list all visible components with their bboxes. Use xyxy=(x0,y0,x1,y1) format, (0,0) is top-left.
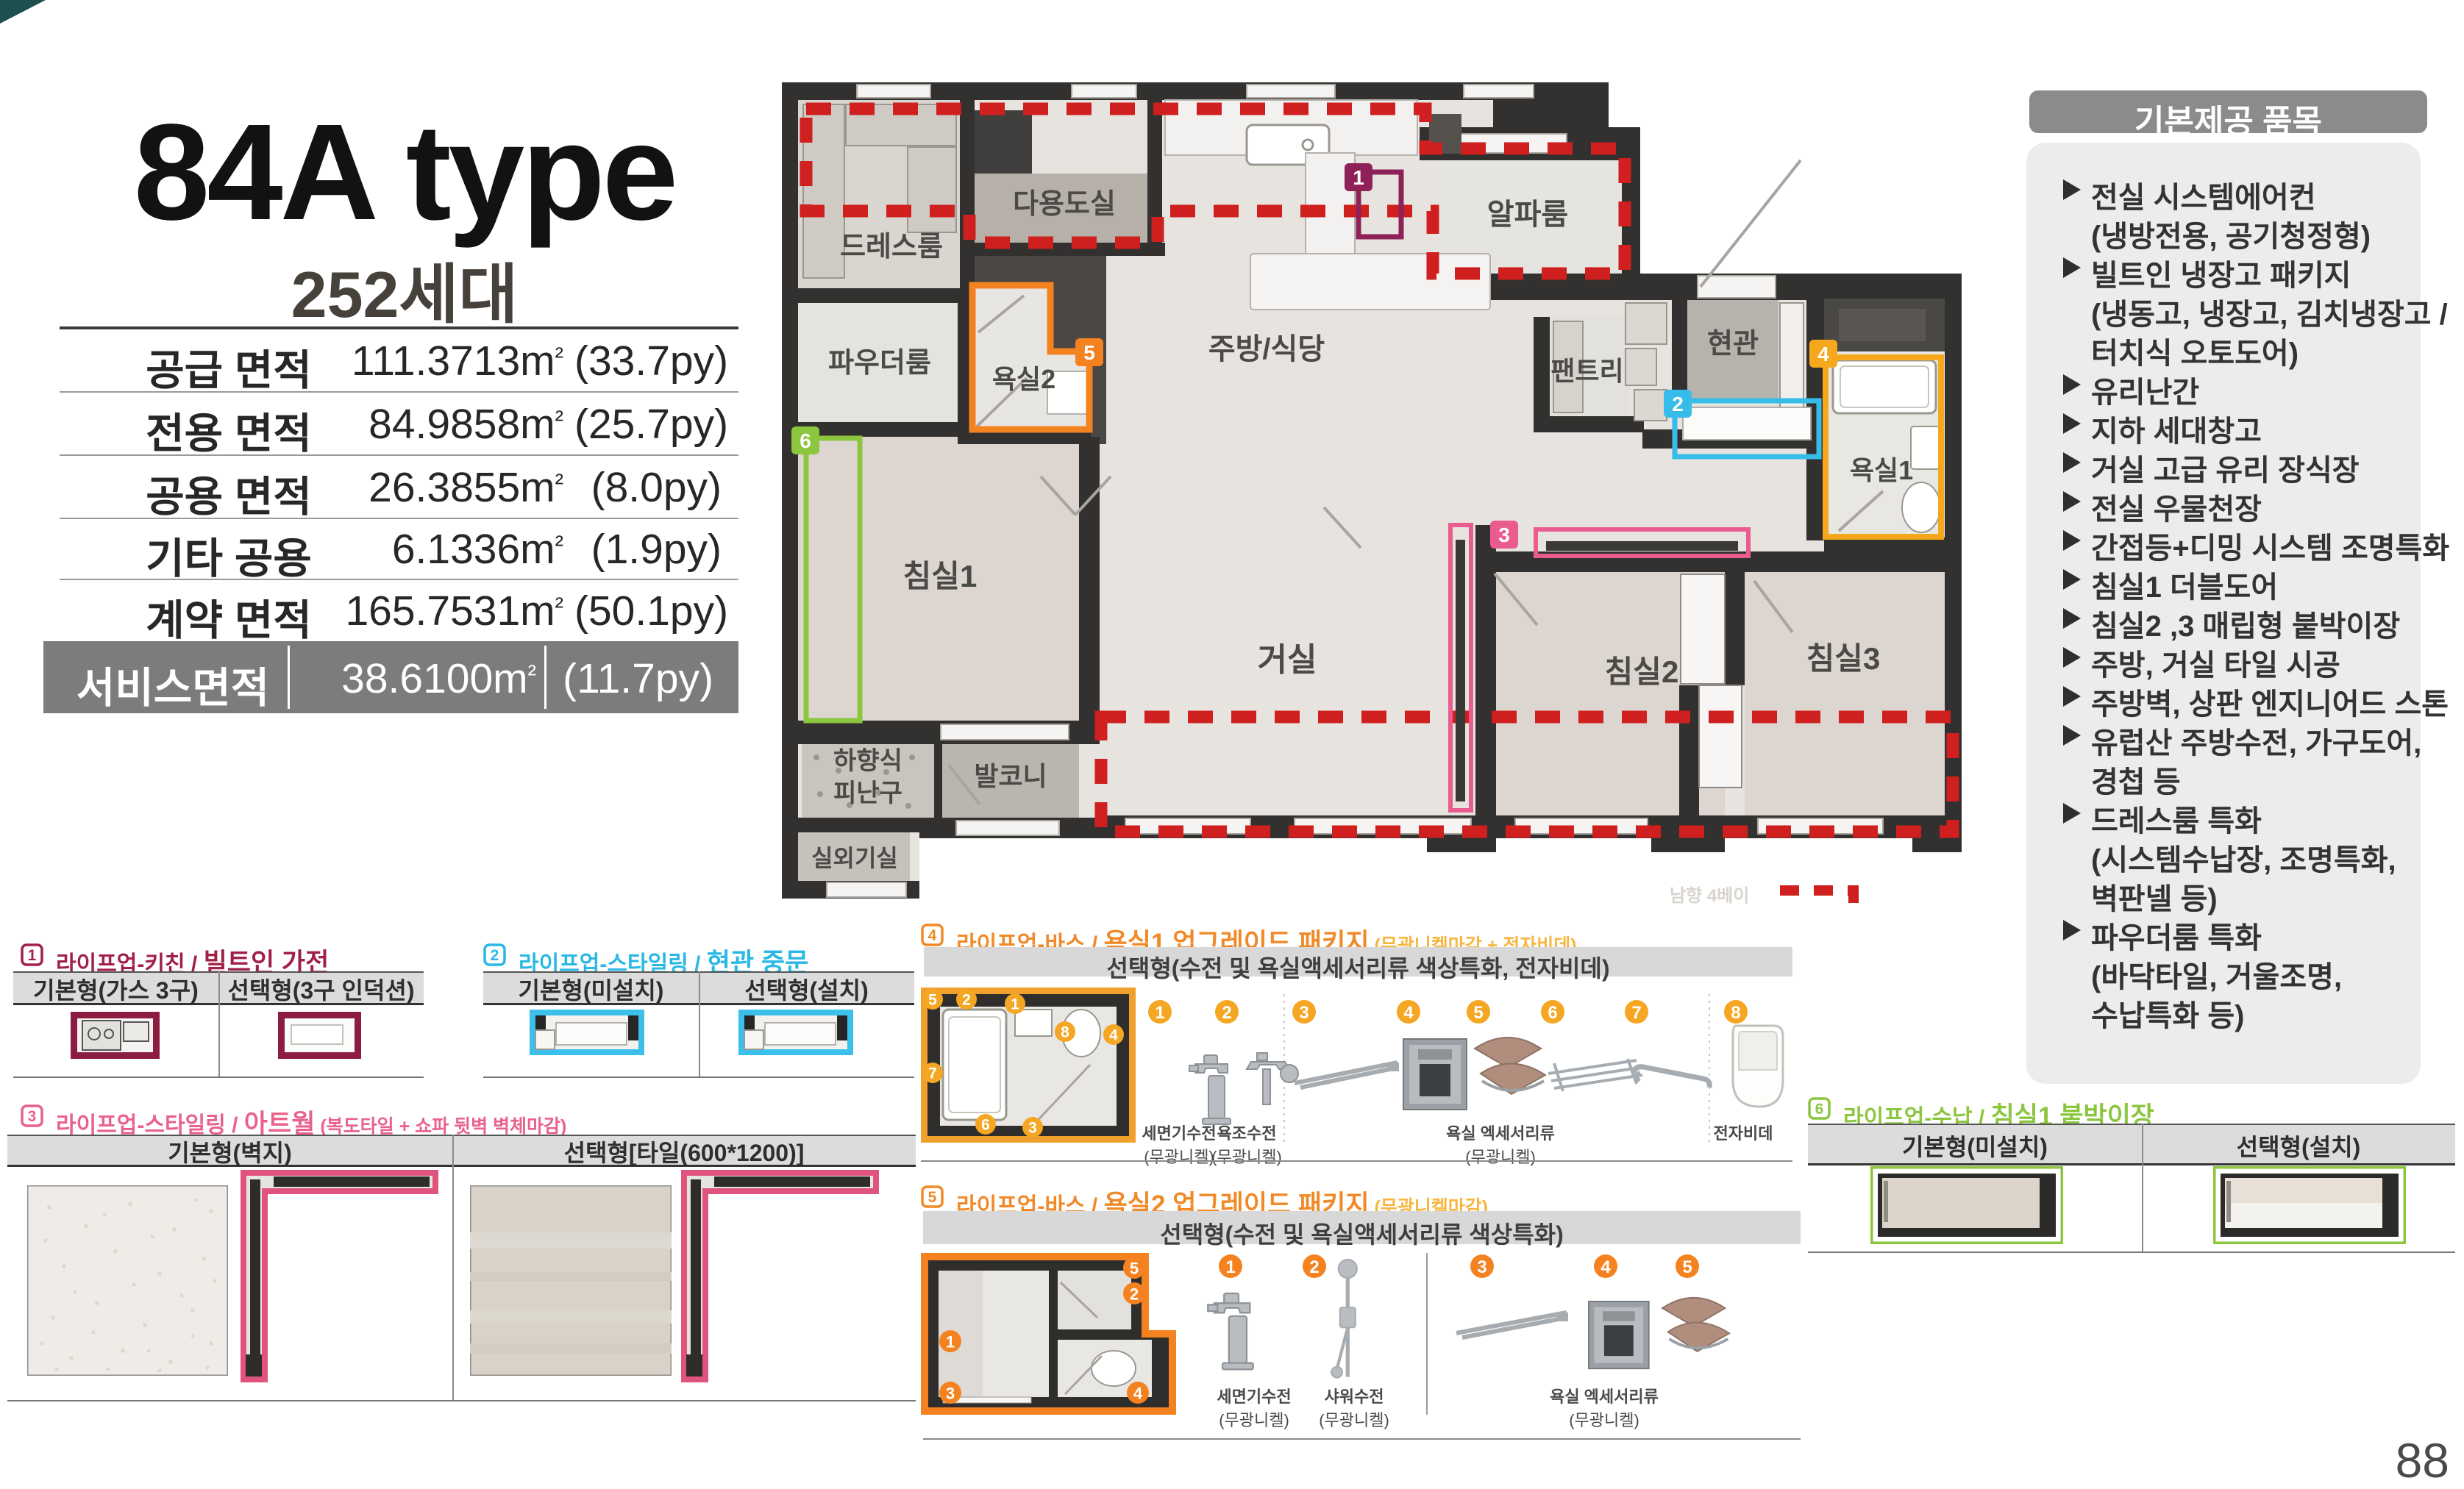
svg-text:7: 7 xyxy=(1631,1003,1641,1023)
svg-text:발코니: 발코니 xyxy=(974,761,1047,791)
svg-text:1: 1 xyxy=(946,1332,955,1351)
svg-text:5: 5 xyxy=(1682,1257,1692,1277)
svg-text:5: 5 xyxy=(1473,1003,1483,1023)
svg-text:4: 4 xyxy=(1109,1027,1118,1044)
svg-text:4: 4 xyxy=(1133,1384,1143,1402)
svg-text:8: 8 xyxy=(1731,1003,1740,1023)
svg-text:4: 4 xyxy=(928,927,937,944)
svg-text:5: 5 xyxy=(928,992,937,1009)
svg-text:욕실2: 욕실2 xyxy=(992,364,1055,394)
svg-text:3: 3 xyxy=(946,1384,955,1402)
svg-text:3: 3 xyxy=(1498,524,1510,546)
svg-text:3: 3 xyxy=(28,1108,37,1125)
svg-text:1: 1 xyxy=(28,947,37,964)
svg-text:1: 1 xyxy=(1353,166,1364,189)
svg-text:5: 5 xyxy=(1083,341,1095,364)
svg-text:침실2: 침실2 xyxy=(1605,654,1679,689)
svg-text:3: 3 xyxy=(1028,1120,1037,1137)
svg-text:2: 2 xyxy=(1222,1003,1231,1023)
svg-text:드레스룸: 드레스룸 xyxy=(840,232,943,263)
svg-text:2: 2 xyxy=(491,947,499,964)
svg-text:6: 6 xyxy=(1548,1003,1557,1023)
svg-text:거실: 거실 xyxy=(1258,642,1317,678)
svg-text:알파룸: 알파룸 xyxy=(1487,199,1568,231)
svg-text:2: 2 xyxy=(1672,393,1684,415)
svg-text:침실1: 침실1 xyxy=(903,559,978,593)
svg-text:1: 1 xyxy=(1011,996,1019,1013)
svg-text:다용도실: 다용도실 xyxy=(1013,189,1116,220)
svg-text:6: 6 xyxy=(1815,1101,1824,1118)
svg-text:파우더룸: 파우더룸 xyxy=(828,348,931,379)
svg-text:6: 6 xyxy=(981,1117,990,1134)
svg-text:8: 8 xyxy=(1061,1024,1069,1041)
svg-text:피난구: 피난구 xyxy=(833,779,902,807)
svg-text:팬트리: 팬트리 xyxy=(1550,356,1623,386)
svg-text:5: 5 xyxy=(1130,1259,1139,1277)
svg-text:침실3: 침실3 xyxy=(1806,641,1881,676)
svg-text:1: 1 xyxy=(1155,1003,1164,1023)
svg-text:2: 2 xyxy=(962,992,971,1009)
svg-text:5: 5 xyxy=(928,1189,937,1206)
svg-text:하향식: 하향식 xyxy=(833,747,902,775)
svg-text:3: 3 xyxy=(1299,1003,1308,1023)
svg-text:4: 4 xyxy=(1403,1003,1414,1023)
svg-text:4: 4 xyxy=(1600,1257,1611,1277)
svg-text:2: 2 xyxy=(1130,1285,1139,1303)
svg-text:3: 3 xyxy=(1477,1257,1486,1277)
svg-text:욕실1: 욕실1 xyxy=(1850,455,1913,485)
svg-text:현관: 현관 xyxy=(1707,329,1759,360)
svg-text:4: 4 xyxy=(1817,343,1829,365)
svg-text:2: 2 xyxy=(1309,1257,1319,1277)
svg-text:주방/식당: 주방/식당 xyxy=(1208,333,1325,365)
svg-text:실외기실: 실외기실 xyxy=(811,845,898,871)
svg-text:7: 7 xyxy=(928,1065,937,1082)
svg-text:1: 1 xyxy=(1225,1257,1235,1277)
svg-text:6: 6 xyxy=(800,429,811,452)
